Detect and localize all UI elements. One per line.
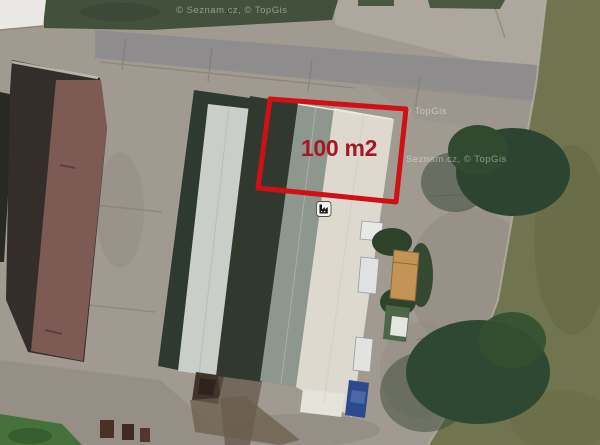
white-car — [353, 337, 373, 372]
watermark-right-lower: Seznam.cz, © TopGis — [406, 154, 507, 165]
area-label: 100 m2 — [301, 135, 377, 161]
tree — [478, 312, 546, 368]
factory-marker[interactable] — [317, 202, 332, 217]
white-car — [358, 257, 379, 294]
building-top-left — [0, 0, 46, 30]
tree — [448, 125, 508, 175]
watermark-right-upper: © TopGis — [404, 106, 447, 117]
aerial-photo: © Seznam.cz, © TopGis © TopGis Seznam.cz… — [0, 0, 600, 445]
watermark-top: © Seznam.cz, © TopGis — [176, 5, 287, 16]
white-trailer — [390, 316, 408, 337]
satellite-image: © Seznam.cz, © TopGis © TopGis Seznam.cz… — [0, 0, 600, 445]
tan-truck — [390, 250, 419, 301]
